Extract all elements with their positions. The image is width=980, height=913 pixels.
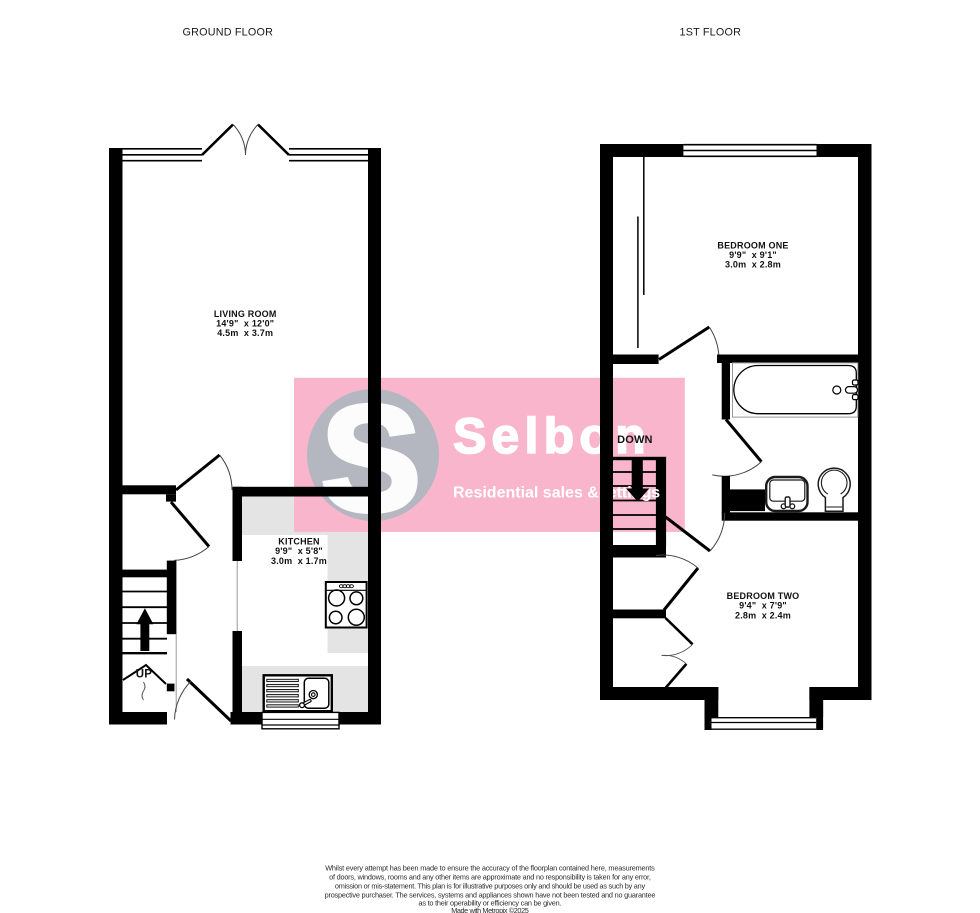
- svg-text:DOWN: DOWN: [617, 434, 653, 446]
- svg-text:GROUND FLOOR: GROUND FLOOR: [183, 27, 274, 39]
- svg-text:3.0m x 2.8m: 3.0m x 2.8m: [725, 260, 781, 270]
- svg-text:3.0m x 1.7m: 3.0m x 1.7m: [271, 556, 327, 566]
- svg-text:4.5m x 3.7m: 4.5m x 3.7m: [217, 328, 273, 338]
- svg-text:KITCHEN: KITCHEN: [278, 537, 319, 547]
- svg-text:9'9" x 9'1": 9'9" x 9'1": [729, 250, 777, 260]
- svg-text:omission or mis-statement. Thi: omission or mis-statement. This plan is …: [335, 881, 646, 890]
- svg-text:BEDROOM ONE: BEDROOM ONE: [717, 240, 788, 250]
- svg-text:of doors, windows, rooms and a: of doors, windows, rooms and any other i…: [329, 872, 651, 881]
- svg-text:Made with Metropix ©2025: Made with Metropix ©2025: [451, 906, 529, 913]
- svg-text:2.8m x 2.4m: 2.8m x 2.4m: [735, 610, 791, 620]
- svg-text:9'9" x 5'8": 9'9" x 5'8": [275, 546, 323, 556]
- svg-text:UP: UP: [136, 669, 153, 681]
- svg-text:9'4" x 7'9": 9'4" x 7'9": [739, 601, 787, 611]
- svg-text:BEDROOM TWO: BEDROOM TWO: [727, 591, 800, 601]
- svg-text:Whilst every attempt has been: Whilst every attempt has been made to en…: [325, 863, 655, 872]
- svg-text:14'9" x 12'0": 14'9" x 12'0": [216, 319, 274, 329]
- svg-text:1ST FLOOR: 1ST FLOOR: [679, 27, 741, 39]
- svg-text:LIVING ROOM: LIVING ROOM: [214, 309, 277, 319]
